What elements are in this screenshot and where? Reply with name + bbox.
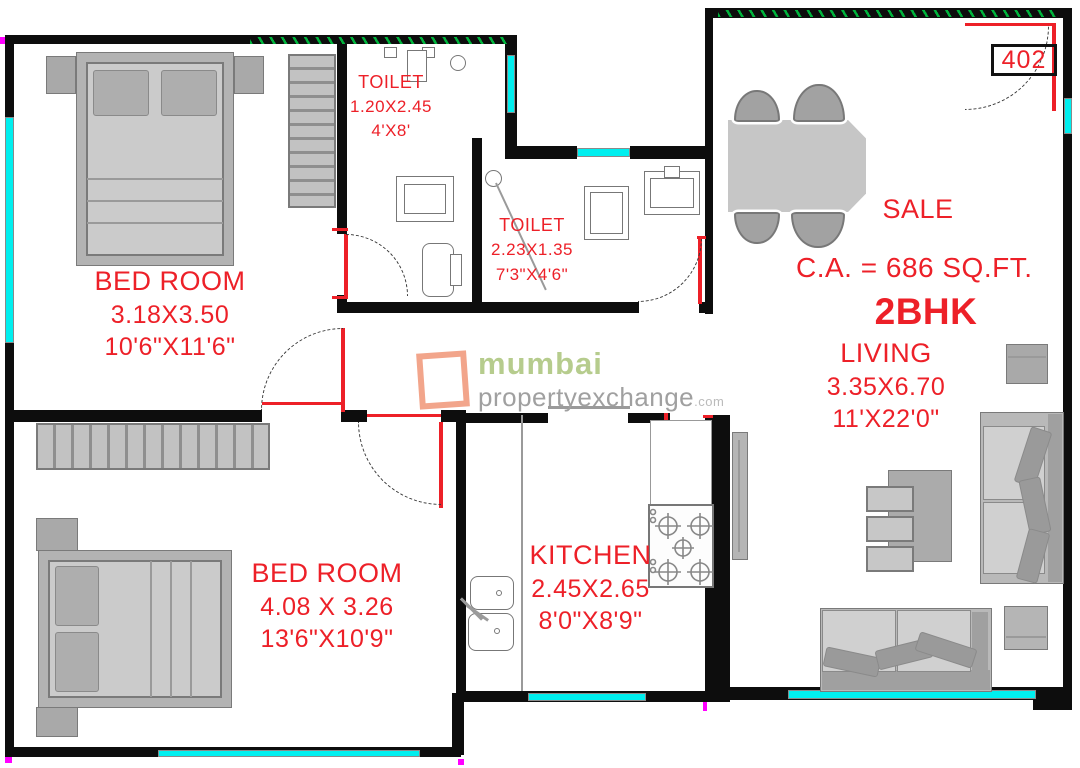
wall <box>630 146 713 159</box>
window <box>528 693 646 701</box>
living-label: LIVING 3.35X6.70 11'X22'0" <box>826 336 946 435</box>
window <box>577 148 630 157</box>
unit-number: 402 <box>1002 46 1047 74</box>
chair-icon <box>793 84 845 122</box>
wall <box>452 693 464 755</box>
bed-fold-line <box>87 200 223 202</box>
bed-fold-line <box>87 222 223 224</box>
coffee-stool-icon <box>866 516 914 542</box>
chair-icon <box>734 90 780 122</box>
wall <box>472 138 482 308</box>
toilet2-label: TOILET 2.23X1.35 7'3"X4'6" <box>482 212 582 287</box>
wc-cistern <box>450 254 462 286</box>
shower-head-icon <box>485 170 502 187</box>
bed-fold-line <box>190 561 192 697</box>
unit-type-label: 2BHK <box>874 288 978 335</box>
wardrobe-icon <box>36 423 270 470</box>
tap-icon <box>664 166 680 178</box>
wall-hatch-marks <box>718 10 1058 17</box>
pillow-icon <box>55 632 99 692</box>
room-name: TOILET <box>482 212 582 238</box>
sink-drain <box>494 628 500 634</box>
toilet1-label: TOILET 1.20X2.45 4'X8' <box>345 70 437 143</box>
room-size-m: 3.35X6.70 <box>826 371 946 403</box>
wall <box>456 415 466 702</box>
wall <box>705 8 713 163</box>
nightstand-icon <box>234 56 264 94</box>
tv-unit-line <box>1008 356 1046 358</box>
nightstand-icon <box>36 707 78 737</box>
unit-number-badge: 402 <box>991 44 1057 76</box>
chair-icon <box>791 212 845 248</box>
sink-icon <box>468 613 514 651</box>
counter-inner <box>404 184 446 214</box>
shower-tray-inner <box>590 192 623 234</box>
pillow-icon <box>161 70 217 116</box>
window <box>507 55 515 113</box>
wall-hatch-marks <box>250 37 510 44</box>
door-frame <box>697 236 706 239</box>
wall <box>1033 687 1072 710</box>
shelf-icon <box>384 47 397 58</box>
room-size-ft: 10'6"X11'6" <box>60 331 280 363</box>
door-frame <box>332 296 348 299</box>
sofa-back <box>822 670 990 690</box>
room-size-m: 2.45X2.65 <box>518 573 663 605</box>
corner-tick <box>703 702 707 711</box>
pillow-icon <box>55 566 99 626</box>
room-size-ft: 8'0"X8'9" <box>518 605 663 637</box>
carpet-area-label: C.A. = 686 SQ.FT. <box>796 250 1026 286</box>
room-name: TOILET <box>345 70 437 95</box>
corner-tick <box>458 759 464 765</box>
room-name: BED ROOM <box>242 556 412 591</box>
sale-label: SALE <box>878 192 958 227</box>
pillow-icon <box>93 70 149 116</box>
sliding-door-line <box>738 440 740 552</box>
door-frame <box>703 415 713 418</box>
room-size-m: 3.18X3.50 <box>60 299 280 331</box>
tv-unit-icon <box>1006 344 1048 384</box>
coffee-stool-icon <box>866 546 914 572</box>
logo-square-icon <box>416 350 470 409</box>
window <box>158 750 420 757</box>
bed-fold-line <box>87 178 223 180</box>
window <box>1064 98 1072 134</box>
kitchen-sliding-door <box>732 432 748 560</box>
washbasin-inner <box>650 178 694 208</box>
corner-tick <box>5 757 12 763</box>
wall <box>456 413 548 423</box>
logo-brand-text: mumbai <box>478 346 603 382</box>
nightstand-icon <box>46 56 76 94</box>
door-swing-arc <box>638 238 702 302</box>
logo-domain-text: propertyexchange.com <box>478 382 724 413</box>
room-name: KITCHEN <box>518 538 663 573</box>
door-frame <box>332 228 348 231</box>
room-size-m: 2.23X1.35 <box>482 238 582 263</box>
floor-plan: BED ROOM 3.18X3.50 10'6"X11'6" TOILET 1.… <box>0 0 1080 768</box>
logo-tld: .com <box>694 394 724 409</box>
nightstand-icon <box>36 518 78 551</box>
room-size-ft: 11'X22'0" <box>826 403 946 435</box>
wall <box>705 160 713 314</box>
bedroom1-label: BED ROOM 3.18X3.50 10'6"X11'6" <box>60 264 280 363</box>
wall <box>505 146 577 159</box>
room-name: BED ROOM <box>60 264 280 299</box>
room-size-m: 4.08 X 3.26 <box>242 591 412 623</box>
room-size-ft: 4'X8' <box>345 119 437 143</box>
side-table-line <box>1006 636 1046 638</box>
room-name: LIVING <box>826 336 946 371</box>
wall <box>5 410 262 422</box>
sink-icon <box>470 576 514 610</box>
kitchen-label: KITCHEN 2.45X2.65 8'0"X8'9" <box>518 538 663 637</box>
wall <box>5 35 14 117</box>
coffee-stool-icon <box>866 486 914 512</box>
door-swing-arc <box>358 422 441 505</box>
side-table-icon <box>1004 606 1048 650</box>
door-frame <box>262 402 342 405</box>
wall <box>5 343 14 757</box>
room-size-ft: 13'6"X10'9" <box>242 623 412 655</box>
bedroom2-label: BED ROOM 4.08 X 3.26 13'6"X10'9" <box>242 556 412 655</box>
bed-fold-line <box>170 561 172 697</box>
room-size-ft: 7'3"X4'6" <box>482 263 582 288</box>
wall <box>337 302 639 313</box>
window <box>5 117 14 343</box>
corner-tick <box>0 37 5 44</box>
wardrobe-icon <box>288 54 336 208</box>
room-size-m: 1.20X2.45 <box>345 95 437 119</box>
dining-table-icon <box>728 120 866 212</box>
door-frame <box>367 414 441 417</box>
drain-icon <box>450 55 466 71</box>
door-swing-arc <box>346 234 408 296</box>
chair-icon <box>734 212 780 244</box>
bed-fold-line <box>150 561 152 697</box>
sink-drain <box>496 590 502 596</box>
logo-domain-main: propertyexchange <box>478 382 694 412</box>
kitchen-platform <box>650 420 712 506</box>
